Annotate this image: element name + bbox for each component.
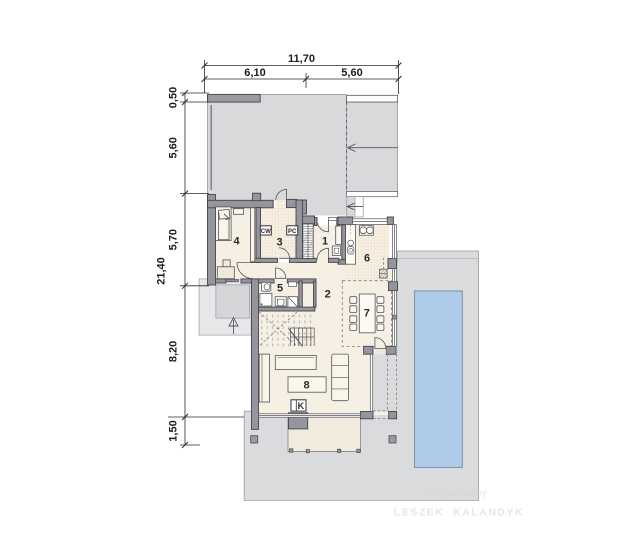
svg-text:CW: CW xyxy=(261,229,271,235)
svg-text:1,50: 1,50 xyxy=(168,420,180,441)
svg-text:7: 7 xyxy=(364,308,370,320)
svg-text:5,60: 5,60 xyxy=(341,67,362,79)
svg-text:5: 5 xyxy=(277,283,283,295)
svg-text:2: 2 xyxy=(325,289,331,301)
svg-text:11,70: 11,70 xyxy=(288,53,315,65)
svg-text:5,60: 5,60 xyxy=(168,137,180,158)
svg-text:6,10: 6,10 xyxy=(244,67,265,79)
svg-text:3: 3 xyxy=(276,237,282,249)
svg-text:21,40: 21,40 xyxy=(156,257,168,285)
svg-text:5,70: 5,70 xyxy=(168,229,180,250)
svg-text:6: 6 xyxy=(364,253,370,265)
svg-text:K: K xyxy=(298,401,305,411)
svg-text:1: 1 xyxy=(322,236,328,248)
svg-text:8,20: 8,20 xyxy=(168,341,180,362)
svg-text:4: 4 xyxy=(233,236,240,248)
svg-text:8: 8 xyxy=(303,380,309,392)
svg-text:0,50: 0,50 xyxy=(168,87,180,108)
svg-text:LESZEK KALANDYK: LESZEK KALANDYK xyxy=(394,507,524,519)
svg-text:PC: PC xyxy=(288,229,297,235)
